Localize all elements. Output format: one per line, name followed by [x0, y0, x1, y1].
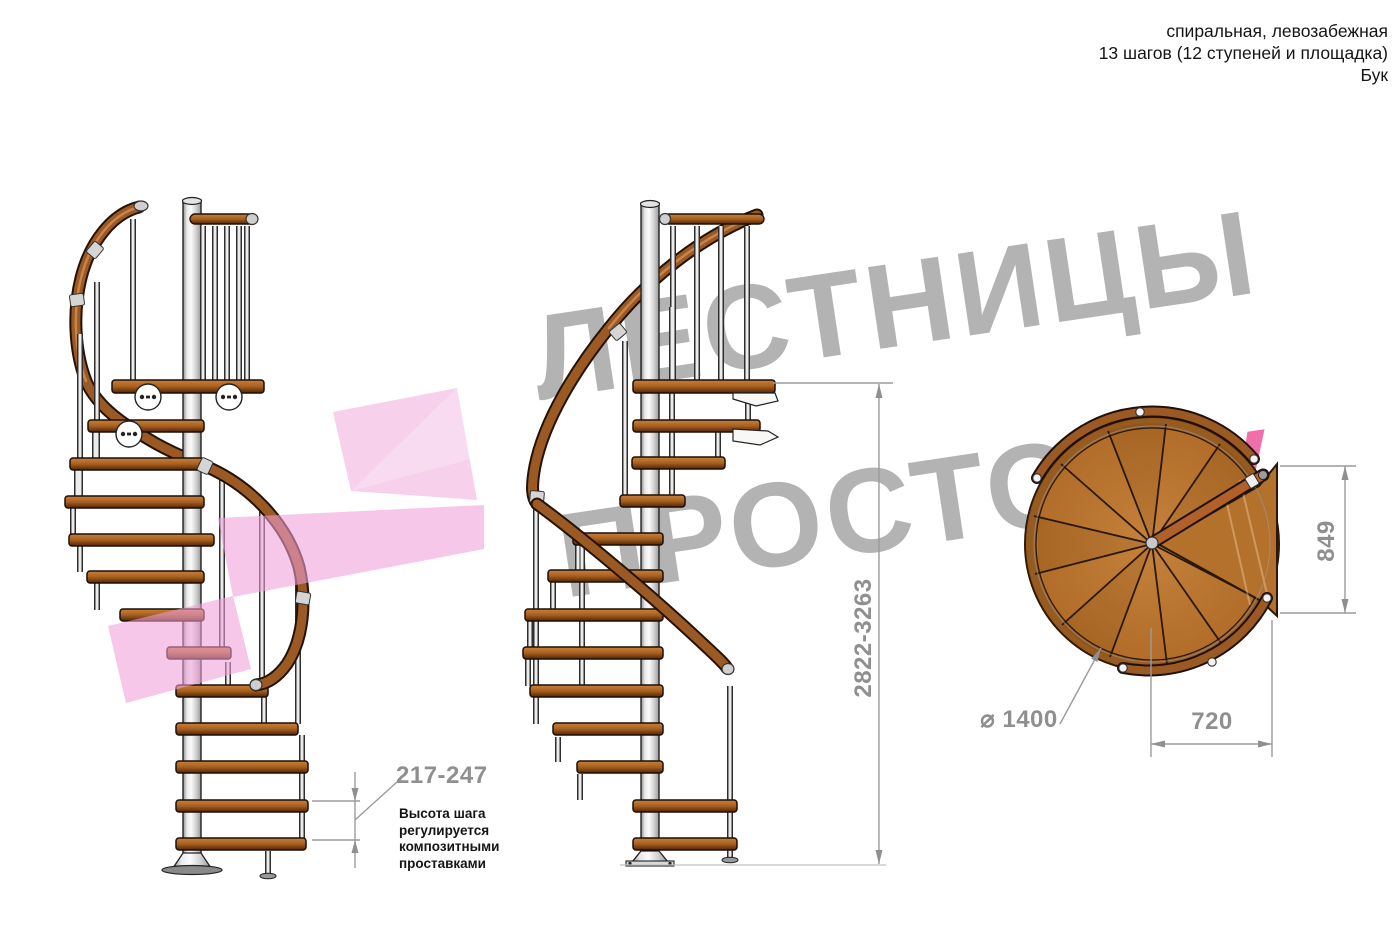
- label-total-height: 2822-3263: [850, 543, 878, 733]
- side-view-rotated: [523, 201, 886, 867]
- note-step-height: Высота шага регулируется композитными пр…: [399, 806, 499, 872]
- label-landing-width: 720: [1162, 708, 1262, 736]
- label-diameter: ⌀ 1400: [954, 705, 1084, 734]
- note-line: Высота шага: [399, 806, 499, 823]
- title-type: спиральная, левозабежная: [1099, 20, 1388, 42]
- note-line: композитными: [399, 839, 499, 856]
- title-material: Бук: [1099, 64, 1388, 86]
- top-railing-left: [190, 214, 258, 225]
- plan-view: [1025, 408, 1279, 672]
- note-line: регулируется: [399, 823, 499, 840]
- technical-drawing-sheet: ЛЕСТНИЦЫ ПРОСТО.Ру: [0, 0, 1400, 929]
- note-line: проставками: [399, 856, 499, 873]
- top-railing-center: [660, 214, 765, 225]
- label-landing-side: 849: [1313, 481, 1341, 601]
- title-steps: 13 шагов (12 ступеней и площадка): [1099, 42, 1388, 64]
- staircase-drawing: [0, 0, 1400, 929]
- wall-brackets-center: [733, 393, 778, 445]
- dim-step-height: [312, 772, 397, 868]
- title-block: спиральная, левозабежная 13 шагов (12 ст…: [1099, 20, 1388, 86]
- label-step-height: 217-247: [396, 762, 488, 790]
